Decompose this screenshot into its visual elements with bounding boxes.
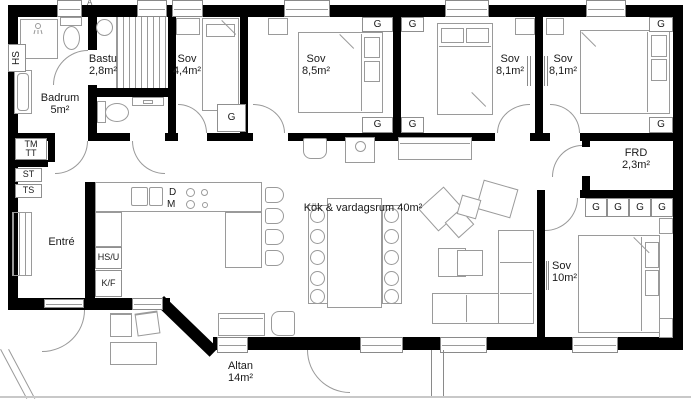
- kitchen-counter-left: [95, 212, 122, 247]
- dining-chair: [310, 271, 325, 286]
- wardrobe-box: G: [401, 117, 424, 133]
- toilet-bowl: [63, 26, 80, 50]
- kitchen-counter-right: [225, 212, 262, 268]
- tv-bench: [398, 137, 472, 160]
- microwave-label: M: [167, 199, 175, 210]
- dining-chair: [384, 250, 399, 265]
- drying-cabinet-box: TS: [15, 184, 42, 198]
- wardrobe-box: G: [401, 17, 424, 32]
- wall-diagonal: [156, 296, 218, 357]
- wardrobe-box: G: [651, 198, 673, 217]
- armchair: [476, 180, 519, 219]
- room-label-sov81a: Sov 8,1m²: [488, 53, 532, 77]
- bar-chair: [265, 187, 284, 203]
- wardrobe-label: G: [614, 203, 622, 213]
- window: [137, 0, 167, 17]
- wall-hall-2: [88, 133, 130, 141]
- wardrobe-label: G: [409, 120, 417, 130]
- door-arc-frd: [552, 145, 582, 177]
- nightstand: [268, 18, 288, 35]
- kf-label: K/F: [101, 279, 115, 289]
- toilet-tank: [60, 17, 82, 26]
- wardrobe-box: G: [649, 17, 673, 32]
- room-name: Kök & vardagsrum 40m²: [263, 202, 463, 214]
- wardrobe-label: G: [592, 203, 600, 213]
- room-name: Bastu: [80, 53, 126, 65]
- room-label-sov44: Sov 4,4m²: [164, 53, 210, 77]
- coffee-table: [457, 250, 483, 276]
- st-label: ST: [23, 170, 35, 180]
- room-area: 8,1m²: [488, 65, 532, 77]
- wall-wc-sov44: [168, 17, 176, 141]
- room-name: Sov: [541, 53, 585, 65]
- door-arc-wc: [132, 141, 165, 174]
- wall-badrum-bastu-a: [88, 17, 97, 50]
- wardrobe-label: G: [657, 20, 665, 30]
- outdoor-table: [110, 342, 157, 365]
- room-label-altan: Altan 14m²: [213, 360, 268, 384]
- dining-chair: [384, 229, 399, 244]
- front-door-leaf: [44, 299, 84, 308]
- dining-chair: [384, 289, 399, 304]
- fridge-freezer-box: K/F: [95, 270, 122, 297]
- room-area: 8,5m²: [293, 65, 339, 77]
- hs-label: HS: [12, 51, 22, 65]
- bar-chair: [265, 250, 284, 266]
- room-label-sov10: Sov 10m²: [552, 260, 594, 284]
- window: [284, 0, 330, 17]
- bar-chair: [265, 229, 284, 245]
- bed-headline: [439, 46, 491, 47]
- shower-head-icon: [31, 22, 45, 36]
- bed-sov10: [578, 235, 660, 333]
- wardrobe-label: G: [658, 203, 666, 213]
- sofa-cushion-line: [500, 262, 532, 263]
- dining-chair: [384, 271, 399, 286]
- wall-bastu-wc: [96, 88, 168, 97]
- room-name: Badrum: [28, 92, 92, 104]
- shelf: [659, 318, 673, 338]
- tt-label: TT: [26, 149, 37, 159]
- ground-line: [0, 396, 691, 398]
- room-label-sov85: Sov 8,5m²: [293, 53, 339, 77]
- pillow: [441, 28, 464, 43]
- wardrobe-label: G: [374, 120, 382, 130]
- wall-right: [673, 5, 683, 350]
- room-label-frd: FRD 2,3m²: [610, 147, 662, 171]
- bench: [218, 313, 265, 336]
- dining-chair: [310, 229, 325, 244]
- pillow: [651, 59, 667, 81]
- washer-dryer-box: TM TT: [15, 138, 47, 160]
- room-name: Sov: [552, 260, 594, 272]
- wall-hall-6: [530, 133, 550, 141]
- sofa-section: [432, 293, 499, 324]
- room-label-kok: Kök & vardagsrum 40m²: [263, 202, 463, 214]
- window-entre: [132, 298, 163, 310]
- pillow: [645, 270, 659, 296]
- room-name: Entré: [34, 236, 89, 248]
- room-area: 4,4m²: [164, 65, 210, 77]
- easy-chair: [271, 311, 295, 336]
- dresser: [176, 18, 200, 35]
- room-area: 10m²: [552, 272, 594, 284]
- bed-headline: [361, 34, 362, 111]
- room-label-badrum: Badrum 5m²: [28, 92, 92, 116]
- pillow: [466, 28, 489, 43]
- bench-line: [220, 318, 263, 319]
- tall-cabinet-box: HS/U: [95, 247, 122, 269]
- room-area: 8,1m²: [541, 65, 585, 77]
- dining-chair: [310, 250, 325, 265]
- radiator: [12, 212, 32, 276]
- window: [572, 337, 618, 353]
- nightstand: [546, 18, 564, 35]
- side-table-lamp: [355, 141, 366, 152]
- window: [445, 0, 489, 17]
- bed-headline: [647, 32, 648, 112]
- door-arc-badrum: [55, 141, 88, 174]
- wc-sink-basin: [143, 100, 153, 104]
- stove-burner: [186, 200, 195, 209]
- kitchen-sink: [149, 187, 163, 206]
- kitchen-counter: [95, 182, 262, 212]
- window: [172, 0, 203, 17]
- door-arc-sov85: [253, 104, 285, 133]
- deck-edge: [431, 350, 444, 396]
- sofa-cushion-line: [466, 295, 467, 322]
- room-label-bastu: Bastu 2,8m²: [80, 53, 126, 77]
- wardrobe-box: G: [217, 104, 246, 132]
- wardrobe-box: G: [585, 198, 607, 217]
- wardrobe-label: G: [374, 20, 382, 30]
- nightstand: [515, 18, 535, 35]
- room-area: 2,3m²: [610, 159, 662, 171]
- window: [440, 337, 487, 353]
- desk-chair: [303, 138, 327, 159]
- window: [360, 337, 403, 353]
- door-arc-entre: [42, 310, 85, 352]
- ts-label: TS: [23, 186, 35, 196]
- stove-burner: [202, 202, 208, 208]
- wardrobe-box: G: [607, 198, 629, 217]
- door-arc-sov81b: [550, 104, 580, 133]
- door-arc-sov81a: [497, 104, 530, 133]
- sofa-section: [498, 230, 534, 324]
- window: [586, 0, 626, 17]
- kitchen-sink: [131, 187, 148, 206]
- room-name: Sov: [488, 53, 532, 65]
- hsu-label: HS/U: [98, 253, 120, 263]
- room-name: Sov: [164, 53, 210, 65]
- wall-hall-3: [165, 133, 178, 141]
- pillow: [364, 61, 380, 82]
- room-name: Altan: [213, 360, 268, 372]
- wall-mark: [546, 261, 549, 290]
- window: [57, 0, 82, 17]
- shelf: [659, 218, 673, 234]
- wardrobe-box: G: [362, 17, 393, 32]
- wall-tm-bottom: [12, 160, 48, 167]
- wardrobe-box: G: [362, 117, 393, 133]
- cleaning-cabinet-box: ST: [15, 168, 42, 182]
- pillow: [645, 242, 659, 268]
- outdoor-chair: [135, 311, 161, 337]
- tv-bench-line: [400, 143, 470, 144]
- wardrobe-label: G: [657, 120, 665, 130]
- wall-top: [8, 5, 683, 17]
- wardrobe-label: G: [409, 20, 417, 30]
- towel-dryer-box: HS: [8, 44, 26, 72]
- bed-headline: [641, 237, 642, 331]
- room-area: 14m²: [213, 372, 268, 384]
- wall-hall-7: [580, 133, 683, 141]
- wc-sink: [132, 97, 164, 106]
- dining-table: [327, 198, 382, 308]
- room-name: Sov: [293, 53, 339, 65]
- wardrobe-box: G: [629, 198, 651, 217]
- door-arc-sov10: [545, 198, 578, 231]
- sofa-cushion-line: [500, 293, 532, 294]
- pillow: [364, 37, 380, 58]
- pillow: [651, 35, 667, 57]
- room-area: 2,8m²: [80, 65, 126, 77]
- outdoor-chair: [110, 313, 132, 337]
- window: [217, 337, 248, 353]
- bed-sov81a: [437, 23, 493, 115]
- floor-plan: HS TM TT ST TS HS/U K/F D M G G G G G G …: [0, 0, 691, 400]
- wardrobe-label: G: [228, 113, 236, 123]
- section-marker: A: [87, 0, 92, 7]
- wc-toilet-bowl: [105, 103, 129, 122]
- wardrobe-box: G: [649, 117, 673, 133]
- wall-hall-4: [207, 133, 253, 141]
- wall-frd-left-a: [582, 141, 590, 147]
- room-name: FRD: [610, 147, 662, 159]
- stove-burner: [186, 188, 195, 197]
- side-table: [345, 137, 375, 163]
- wall-living-sov10: [537, 190, 545, 337]
- room-label-sov81b: Sov 8,1m²: [541, 53, 585, 77]
- door-arc-altan: [307, 350, 350, 393]
- wardrobe-label: G: [636, 203, 644, 213]
- wall-sov85-sov81a: [393, 17, 401, 141]
- room-area: 5m²: [28, 104, 92, 116]
- dishwasher-label: D: [169, 187, 176, 198]
- sauna-heater: [96, 19, 113, 36]
- wall-sov81a-sov81b: [535, 17, 543, 141]
- deck-edge-diagonal: [0, 349, 27, 399]
- room-label-entre: Entré: [34, 236, 89, 248]
- stove-burner: [201, 189, 208, 196]
- dining-chair: [310, 289, 325, 304]
- wall-frd-bottom: [580, 190, 683, 198]
- wall-tm-right: [48, 141, 55, 162]
